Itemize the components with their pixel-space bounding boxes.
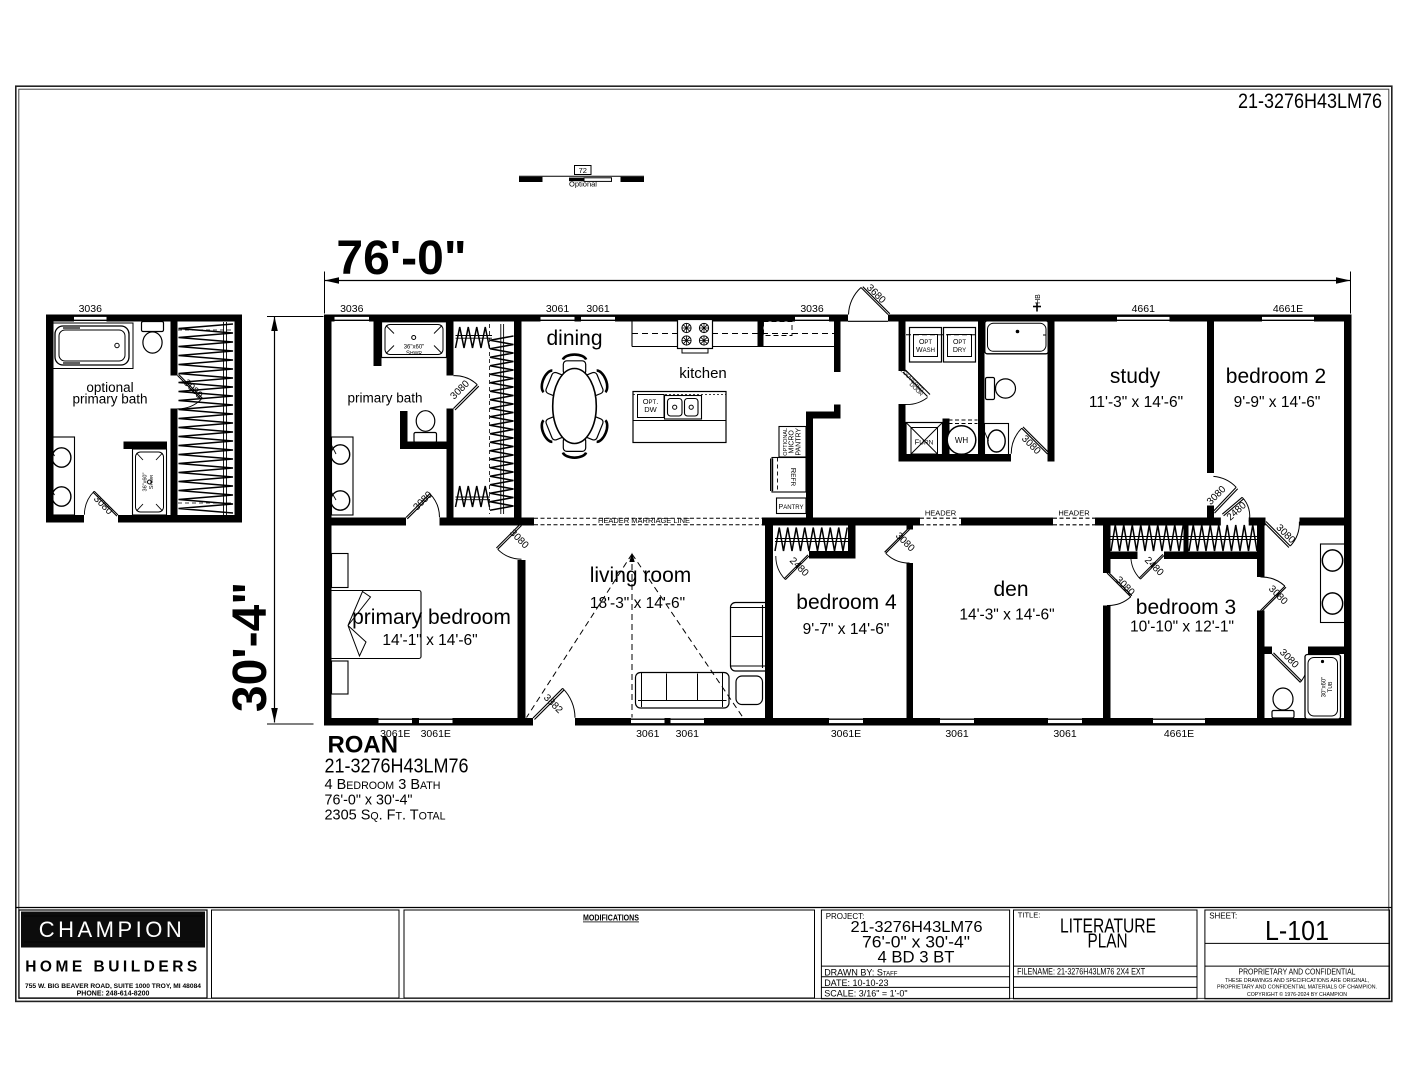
- svg-text:PROPRIETARY AND CONFIDENTIAL: PROPRIETARY AND CONFIDENTIAL: [1239, 967, 1356, 977]
- svg-text:PROPRIETARY AND CONFIDENTIAL M: PROPRIETARY AND CONFIDENTIAL MATERIALS O…: [1217, 985, 1377, 991]
- svg-text:DW: DW: [644, 405, 657, 414]
- svg-text:OPT: OPT: [953, 339, 966, 346]
- svg-text:living room: living room: [590, 564, 692, 587]
- svg-text:kitchen: kitchen: [679, 365, 727, 382]
- svg-text:4 Bedroom 3 Bath: 4 Bedroom 3 Bath: [325, 776, 441, 793]
- svg-text:3061: 3061: [1053, 728, 1077, 740]
- svg-text:HEADER: HEADER: [925, 509, 957, 518]
- svg-text:WASH: WASH: [916, 347, 935, 354]
- svg-text:L-101: L-101: [1265, 915, 1329, 946]
- svg-text:SHWR: SHWR: [406, 351, 422, 357]
- svg-text:bedroom 4: bedroom 4: [796, 591, 897, 614]
- svg-text:14'-1" x 14'-6": 14'-1" x 14'-6": [382, 632, 477, 649]
- svg-text:9'-9" x 14'-6": 9'-9" x 14'-6": [1234, 394, 1321, 411]
- svg-text:HEADER MARRIAGE LINE: HEADER MARRIAGE LINE: [598, 516, 690, 525]
- svg-text:3061: 3061: [546, 303, 570, 315]
- svg-text:den: den: [993, 578, 1028, 601]
- svg-text:9'-7" x 14'-6": 9'-7" x 14'-6": [803, 621, 890, 638]
- svg-text:SCALE: 3/16" = 1'-0": SCALE: 3/16" = 1'-0": [824, 988, 907, 998]
- svg-text:11'-3" x 14'-6": 11'-3" x 14'-6": [1089, 394, 1183, 411]
- svg-text:primary bath: primary bath: [347, 391, 422, 406]
- svg-text:TUB: TUB: [1328, 681, 1334, 692]
- svg-text:MODIFICATIONS: MODIFICATIONS: [583, 914, 640, 923]
- svg-text:4661E: 4661E: [1164, 728, 1194, 740]
- svg-text:PANTRY: PANTRY: [779, 504, 804, 511]
- svg-text:76'-0": 76'-0": [336, 232, 466, 285]
- svg-text:PLAN: PLAN: [1088, 931, 1128, 953]
- svg-text:THESE DRAWINGS AND SPECIFICATI: THESE DRAWINGS AND SPECIFICATIONS ARE OR…: [1225, 978, 1369, 984]
- svg-text:2305 Sq. Ft. Total: 2305 Sq. Ft. Total: [325, 807, 446, 824]
- svg-text:30"x60": 30"x60": [1322, 677, 1328, 698]
- svg-text:36"x60": 36"x60": [143, 473, 149, 492]
- svg-text:3061: 3061: [676, 728, 700, 740]
- svg-text:PHONE: 248-614-8200: PHONE: 248-614-8200: [77, 991, 150, 998]
- svg-text:dining: dining: [546, 327, 602, 350]
- svg-text:bedroom 3: bedroom 3: [1136, 596, 1236, 619]
- svg-text:bedroom 2: bedroom 2: [1226, 365, 1326, 388]
- svg-text:3036: 3036: [340, 303, 364, 315]
- svg-text:10'-10" x 12'-1": 10'-10" x 12'-1": [1130, 619, 1234, 636]
- svg-text:WH: WH: [955, 436, 969, 445]
- svg-text:4661E: 4661E: [1273, 303, 1303, 315]
- svg-text:DRY: DRY: [953, 347, 966, 354]
- svg-text:3061: 3061: [636, 728, 660, 740]
- svg-text:SHEET:: SHEET:: [1209, 912, 1237, 921]
- svg-text:36"x60": 36"x60": [404, 345, 425, 351]
- svg-text:755 W. BIG BEAVER ROAD, SUITE: 755 W. BIG BEAVER ROAD, SUITE 1000 TROY,…: [25, 983, 201, 990]
- svg-text:4 BD 3 BT: 4 BD 3 BT: [878, 948, 955, 967]
- svg-text:PANTRY: PANTRY: [796, 428, 803, 456]
- svg-text:COPYRIGHT © 1976-2024 BY CHAMP: COPYRIGHT © 1976-2024 BY CHAMPION: [1247, 991, 1347, 998]
- svg-text:CHAMPION: CHAMPION: [39, 917, 186, 942]
- svg-text:3036: 3036: [79, 303, 103, 315]
- svg-text:14'-3" x 14'-6": 14'-3" x 14'-6": [959, 607, 1054, 624]
- svg-text:72: 72: [579, 166, 587, 175]
- svg-text:ROAN: ROAN: [328, 732, 399, 759]
- svg-text:21-3276H43LM76: 21-3276H43LM76: [325, 756, 469, 778]
- svg-text:study: study: [1110, 365, 1161, 388]
- svg-text:primary bedroom: primary bedroom: [352, 606, 511, 629]
- svg-text:REFR: REFR: [789, 468, 798, 487]
- svg-text:21-3276H43LM76: 21-3276H43LM76: [1238, 90, 1382, 113]
- svg-text:TITLE:: TITLE:: [1018, 911, 1041, 920]
- svg-text:OPT: OPT: [919, 339, 932, 346]
- svg-text:DATE: 10-10-23: DATE: 10-10-23: [824, 978, 888, 988]
- svg-text:30'-4": 30'-4": [224, 582, 277, 712]
- svg-text:DRAWN BY: Staff: DRAWN BY: Staff: [824, 967, 898, 977]
- svg-text:HOME BUILDERS: HOME BUILDERS: [25, 959, 201, 976]
- svg-text:3061: 3061: [945, 728, 969, 740]
- svg-text:HB: HB: [1035, 294, 1042, 304]
- svg-text:FILENAME: 21-3276H43LM76 2X4: FILENAME: 21-3276H43LM76 2X4 EXT: [1017, 967, 1145, 978]
- svg-text:primary bath: primary bath: [72, 392, 147, 407]
- svg-text:3061E: 3061E: [831, 728, 861, 740]
- svg-text:3036: 3036: [800, 303, 824, 315]
- svg-text:3061: 3061: [586, 303, 610, 315]
- svg-text:3061E: 3061E: [421, 728, 451, 740]
- svg-text:FURN: FURN: [915, 438, 934, 447]
- svg-text:HEADER: HEADER: [1058, 509, 1090, 518]
- svg-text:MICRO: MICRO: [789, 430, 796, 454]
- svg-text:Optional: Optional: [569, 180, 597, 189]
- svg-text:4661: 4661: [1132, 303, 1156, 315]
